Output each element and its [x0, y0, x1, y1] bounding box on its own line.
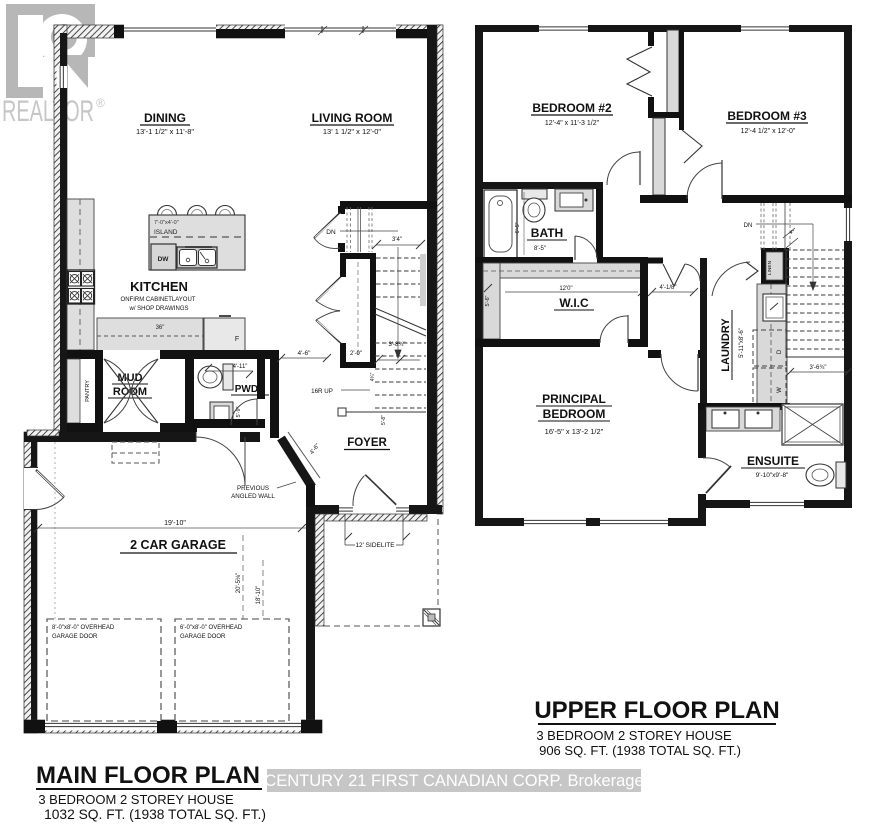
- svg-text:W: W: [777, 387, 783, 393]
- svg-text:13'-1 1/2" x 11'-8": 13'-1 1/2" x 11'-8": [136, 127, 194, 136]
- svg-text:DINING: DINING: [144, 111, 186, 125]
- svg-text:3 BEDROOM 2 STOREY HOUSE: 3 BEDROOM 2 STOREY HOUSE: [38, 792, 234, 807]
- svg-text:LAUNDRY: LAUNDRY: [720, 318, 732, 372]
- svg-text:7'-0"x4'-0": 7'-0"x4'-0": [154, 220, 179, 226]
- svg-text:3'4": 3'4": [392, 237, 402, 243]
- svg-text:8'-5": 8'-5": [534, 246, 546, 252]
- svg-text:19'-10": 19'-10": [164, 520, 186, 527]
- svg-text:FOYER: FOYER: [347, 437, 387, 449]
- svg-text:D: D: [777, 349, 783, 354]
- svg-text:13' 1 1/2" x 12'-0": 13' 1 1/2" x 12'-0": [323, 127, 382, 136]
- svg-text:3'-6¾": 3'-6¾": [810, 365, 827, 371]
- svg-text:F: F: [235, 336, 239, 343]
- svg-text:12'-4 1/2" x 12'-0": 12'-4 1/2" x 12'-0": [741, 128, 796, 135]
- svg-text:906 SQ. FT. (1938 TOTAL SQ. F: 906 SQ. FT. (1938 TOTAL SQ. FT.): [539, 743, 741, 758]
- svg-text:5'-8": 5'-8": [381, 415, 387, 425]
- svg-text:6'-0"x8'-0" OVERHEAD: 6'-0"x8'-0" OVERHEAD: [180, 625, 243, 631]
- svg-text:4'-6": 4'-6": [298, 350, 312, 357]
- svg-text:ANGLED WALL: ANGLED WALL: [231, 493, 275, 500]
- svg-text:6'-5": 6'-5": [515, 222, 521, 233]
- svg-text:LINEN: LINEN: [767, 260, 773, 275]
- svg-text:2'-0": 2'-0": [350, 351, 362, 357]
- svg-text:2 CAR GARAGE: 2 CAR GARAGE: [130, 538, 226, 552]
- svg-text:12' SIDELITE: 12' SIDELITE: [355, 542, 395, 549]
- svg-text:BEDROOM: BEDROOM: [543, 407, 606, 421]
- svg-text:ONFIRM CABINETLAYOUT: ONFIRM CABINETLAYOUT: [121, 297, 196, 303]
- svg-text:1032 SQ. FT. (1938 TOTAL SQ.: 1032 SQ. FT. (1938 TOTAL SQ. FT.): [44, 807, 266, 822]
- svg-text:4¾": 4¾": [370, 372, 376, 381]
- svg-text:LIVING ROOM: LIVING ROOM: [312, 111, 393, 125]
- svg-text:CENTURY 21 FIRST CANADIAN CORP: CENTURY 21 FIRST CANADIAN CORP. Brokerag…: [264, 772, 643, 790]
- svg-text:12'0": 12'0": [559, 286, 572, 292]
- svg-text:9'-10"x9'-8": 9'-10"x9'-8": [756, 472, 789, 479]
- svg-text:UPPER FLOOR PLAN: UPPER FLOOR PLAN: [534, 697, 779, 724]
- svg-text:5'-11"x8'-6": 5'-11"x8'-6": [739, 328, 745, 358]
- svg-text:36": 36": [156, 325, 165, 331]
- svg-text:BEDROOM #3: BEDROOM #3: [727, 109, 807, 123]
- svg-text:KITCHEN: KITCHEN: [130, 279, 188, 294]
- svg-text:16'-5" x 13'-2 1/2": 16'-5" x 13'-2 1/2": [545, 427, 604, 436]
- svg-text:GARAGE DOOR: GARAGE DOOR: [52, 634, 98, 640]
- svg-text:DN: DN: [326, 229, 336, 236]
- svg-text:5'-6": 5'-6": [485, 295, 491, 306]
- svg-text:ENSUITE: ENSUITE: [747, 454, 799, 468]
- svg-text:PREVIOUS: PREVIOUS: [237, 485, 269, 492]
- svg-text:16R UP: 16R UP: [311, 388, 333, 395]
- svg-text:w/ SHOP DRAWINGS: w/ SHOP DRAWINGS: [128, 306, 188, 312]
- svg-text:MAIN FLOOR PLAN: MAIN FLOOR PLAN: [36, 762, 260, 789]
- svg-text:3 BEDROOM 2 STOREY HOUSE: 3 BEDROOM 2 STOREY HOUSE: [536, 728, 732, 743]
- svg-text:DN: DN: [744, 223, 753, 229]
- svg-text:DW: DW: [158, 256, 170, 263]
- svg-text:BEDROOM #2: BEDROOM #2: [532, 101, 612, 115]
- svg-text:20'-5⅛": 20'-5⅛": [236, 573, 242, 593]
- svg-text:W.I.C: W.I.C: [559, 296, 589, 310]
- svg-text:18'-10": 18'-10": [256, 586, 262, 605]
- svg-text:PRINCIPAL: PRINCIPAL: [542, 392, 606, 406]
- svg-text:®: ®: [96, 96, 105, 110]
- svg-text:BATH: BATH: [531, 226, 563, 240]
- svg-text:4'-11": 4'-11": [233, 364, 248, 370]
- svg-text:PANTRY: PANTRY: [85, 380, 91, 402]
- svg-text:REALTOR: REALTOR: [2, 95, 94, 128]
- svg-text:8'-0"x8'-0" OVERHEAD: 8'-0"x8'-0" OVERHEAD: [52, 625, 115, 631]
- svg-text:12'-4" x 11'-3 1/2": 12'-4" x 11'-3 1/2": [545, 120, 600, 127]
- svg-text:GARAGE DOOR: GARAGE DOOR: [180, 634, 226, 640]
- svg-text:ISLAND: ISLAND: [154, 229, 178, 236]
- svg-text:3'-8¾": 3'-8¾": [389, 342, 406, 348]
